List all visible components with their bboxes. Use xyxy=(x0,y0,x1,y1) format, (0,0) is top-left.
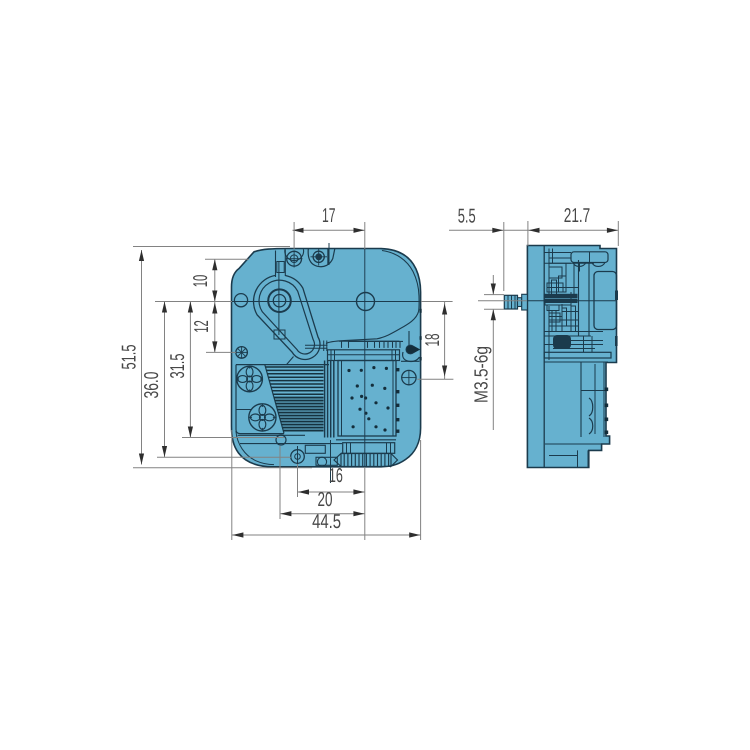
svg-text:M3.5-6g: M3.5-6g xyxy=(472,346,493,403)
svg-text:36.0: 36.0 xyxy=(141,372,163,399)
svg-text:5.5: 5.5 xyxy=(458,206,476,228)
svg-text:20: 20 xyxy=(318,489,333,511)
svg-text:51.5: 51.5 xyxy=(119,345,141,370)
svg-text:10: 10 xyxy=(190,275,212,288)
svg-text:17: 17 xyxy=(322,205,336,227)
svg-text:31.5: 31.5 xyxy=(167,354,189,379)
svg-text:12: 12 xyxy=(191,320,213,333)
svg-text:44.5: 44.5 xyxy=(312,511,341,533)
svg-text:21.7: 21.7 xyxy=(564,205,591,227)
svg-text:18: 18 xyxy=(422,334,444,347)
svg-text:16: 16 xyxy=(329,465,343,487)
